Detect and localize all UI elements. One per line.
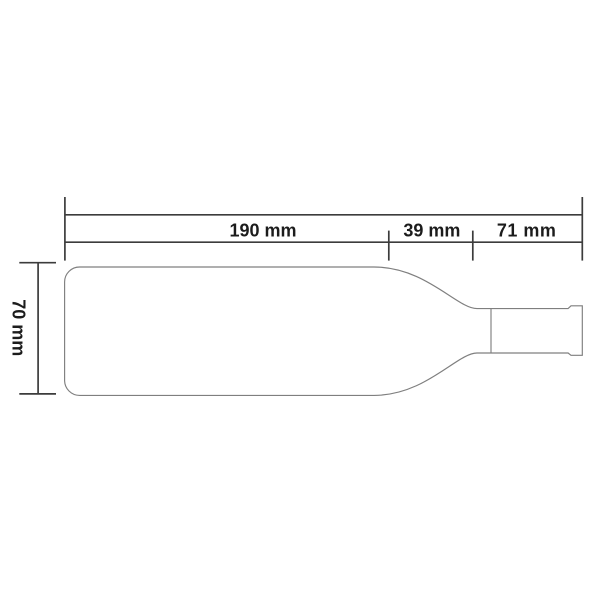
svg-text:70 mm: 70 mm	[8, 299, 28, 356]
svg-text:39 mm: 39 mm	[403, 221, 460, 241]
svg-text:71 mm: 71 mm	[497, 221, 557, 241]
svg-text:190 mm: 190 mm	[229, 221, 296, 241]
